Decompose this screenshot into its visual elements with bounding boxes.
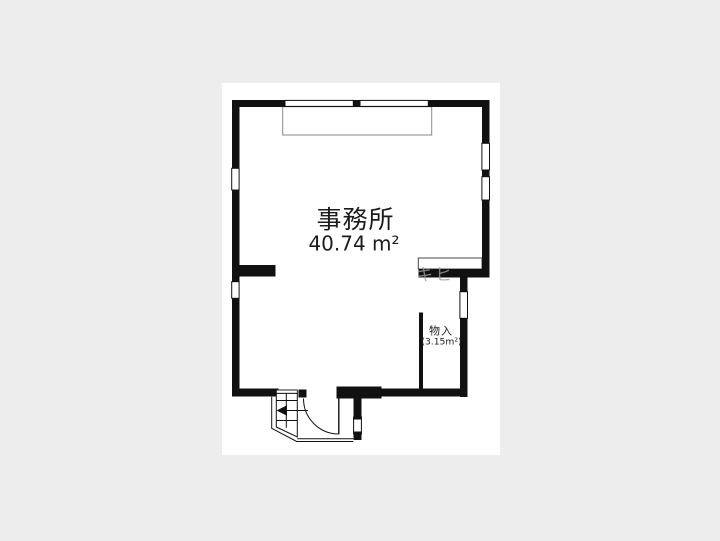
top-alcove-outline bbox=[283, 107, 432, 135]
wall-bottom-left-segment bbox=[232, 389, 278, 397]
window-right-lower bbox=[482, 177, 490, 200]
stair-threshold bbox=[276, 390, 297, 393]
entry-window-cap-top bbox=[353, 417, 361, 420]
room-area-label: 40.74 m² bbox=[308, 232, 399, 256]
window-left-upper bbox=[232, 168, 239, 190]
wall-left bbox=[232, 100, 239, 397]
floorplan-screenshot: 事務所 40.74 m² 物入 (3.15m²) キヒ bbox=[0, 0, 720, 541]
watermark-text: キヒ bbox=[416, 266, 454, 286]
wall-interior-stub-left bbox=[239, 265, 275, 277]
wall-bottom-thick-segment bbox=[337, 387, 382, 399]
window-top-left bbox=[285, 100, 353, 106]
window-left-lower bbox=[232, 282, 239, 299]
entry-window-cap-bottom bbox=[353, 432, 361, 435]
closet-area-label: (3.15m²) bbox=[421, 337, 461, 348]
window-right-upper bbox=[482, 143, 490, 170]
window-closet bbox=[460, 292, 468, 319]
room-name-label: 事務所 bbox=[316, 205, 394, 234]
closet-name-label: 物入 bbox=[429, 324, 453, 338]
door-jamb-block bbox=[299, 390, 307, 398]
wall-bottom-right-segment bbox=[382, 389, 460, 397]
window-entry-stub bbox=[354, 417, 362, 434]
window-top-right bbox=[360, 100, 428, 106]
wall-closet-partition bbox=[419, 313, 423, 390]
floorplan-drawing: 事務所 40.74 m² 物入 (3.15m²) キヒ bbox=[0, 0, 720, 541]
